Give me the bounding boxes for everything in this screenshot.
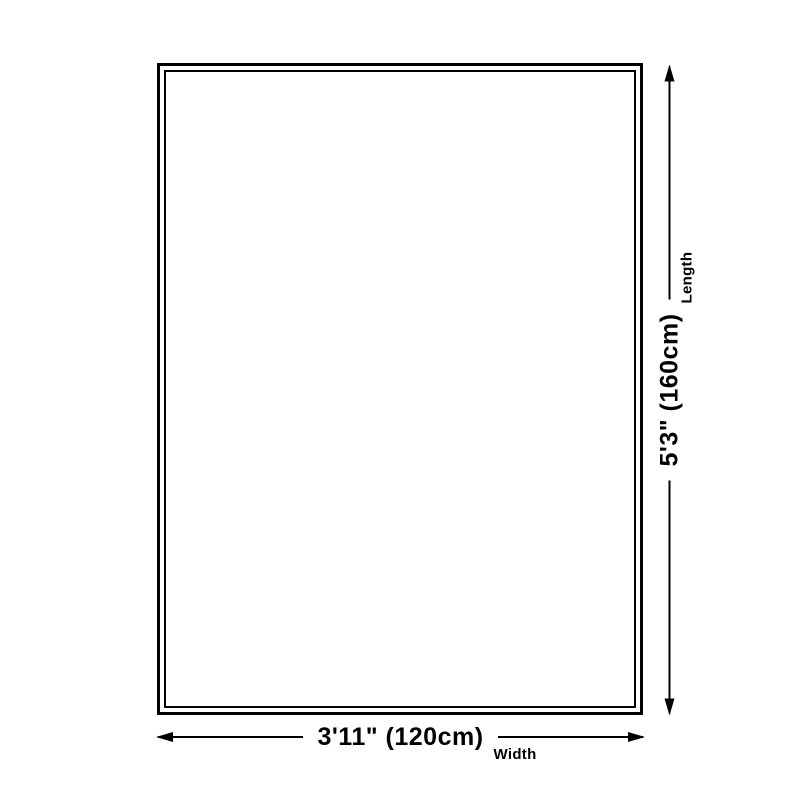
product-outline-inner xyxy=(164,70,636,708)
width-name: Width xyxy=(494,747,537,762)
length-value: 5'3" (160cm)Length xyxy=(655,299,684,480)
width-dimension: 3'11" (120cm)Width xyxy=(156,697,645,777)
width-value: 3'11" (120cm)Width xyxy=(303,723,497,752)
length-label-group: 5'3" (160cm)Length xyxy=(630,65,710,716)
dimension-diagram: 5'3" (160cm)Length 3'11" (120cm)Width xyxy=(0,0,800,800)
length-dimension: 5'3" (160cm)Length xyxy=(630,65,710,716)
length-name: Length xyxy=(679,252,694,304)
product-outline-outer xyxy=(157,63,643,715)
width-label-group: 3'11" (120cm)Width xyxy=(156,697,645,777)
